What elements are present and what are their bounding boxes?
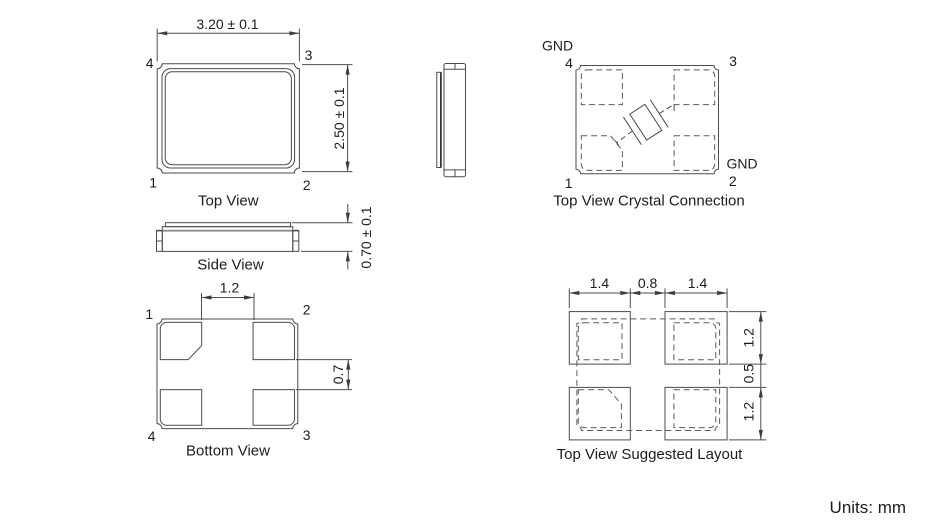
svg-text:2: 2 — [729, 173, 737, 189]
svg-text:1.2: 1.2 — [741, 402, 757, 422]
svg-text:Top View Crystal Connection: Top View Crystal Connection — [553, 193, 744, 210]
svg-text:1: 1 — [565, 175, 573, 191]
svg-text:0.7: 0.7 — [330, 365, 346, 385]
svg-text:1.4: 1.4 — [590, 275, 610, 291]
svg-text:3: 3 — [305, 47, 313, 63]
svg-text:3: 3 — [729, 53, 737, 69]
svg-text:Top View: Top View — [198, 193, 259, 210]
svg-text:Bottom View: Bottom View — [186, 443, 270, 460]
svg-text:4: 4 — [565, 55, 573, 71]
svg-text:Side View: Side View — [197, 257, 264, 274]
svg-text:4: 4 — [148, 428, 156, 444]
svg-text:0.8: 0.8 — [638, 275, 658, 291]
svg-text:1: 1 — [149, 175, 157, 191]
svg-text:3.20 ± 0.1: 3.20 ± 0.1 — [196, 16, 258, 32]
svg-text:3: 3 — [303, 427, 311, 443]
svg-text:GND: GND — [542, 38, 573, 54]
svg-text:Top View Suggested Layout: Top View Suggested Layout — [557, 446, 744, 463]
svg-text:1.2: 1.2 — [741, 328, 757, 348]
svg-text:0.70 ± 0.1: 0.70 ± 0.1 — [358, 206, 374, 268]
svg-text:1.2: 1.2 — [220, 280, 240, 296]
svg-text:1.4: 1.4 — [688, 275, 708, 291]
svg-text:GND: GND — [726, 156, 757, 172]
svg-text:2: 2 — [303, 177, 311, 193]
svg-text:1: 1 — [145, 306, 153, 322]
svg-text:4: 4 — [146, 55, 154, 71]
svg-text:2.50 ± 0.1: 2.50 ± 0.1 — [331, 87, 347, 149]
svg-text:Units: mm: Units: mm — [830, 498, 907, 517]
svg-text:2: 2 — [303, 302, 311, 318]
svg-text:0.5: 0.5 — [741, 364, 757, 384]
